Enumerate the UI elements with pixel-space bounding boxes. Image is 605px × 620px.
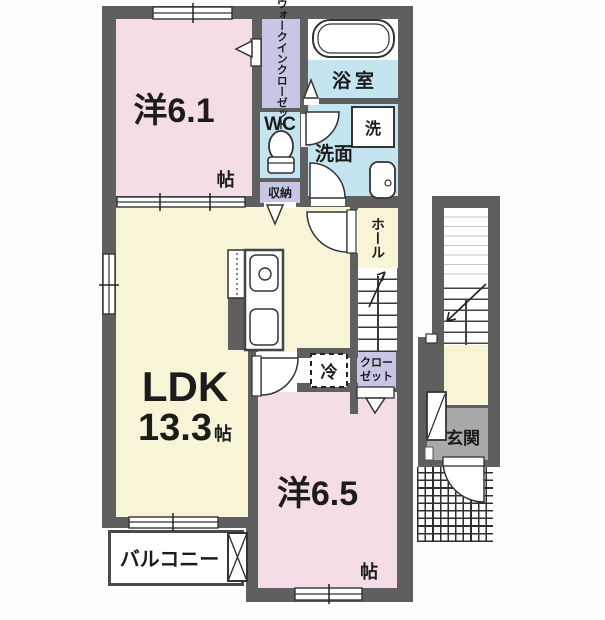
window-annex — [426, 334, 437, 343]
stairs-annex-arrow-icon — [447, 284, 486, 321]
bath-label: 浴室 — [308, 60, 398, 98]
bedroom1-unit: 帖 — [217, 166, 235, 192]
entrance-door-leaf — [443, 457, 484, 466]
bedroom2-door-arc — [261, 358, 298, 395]
washbasin-drain — [385, 180, 391, 186]
bedroom1-name: 洋6.1 — [133, 83, 214, 132]
bedroom2-label: 洋6.5帖 — [258, 392, 397, 588]
entrance-door-arc — [443, 461, 484, 502]
wic-label-line1: ウォークイン — [273, 0, 290, 64]
kitchen-faucet-icon — [259, 268, 271, 280]
fridge-label: 冷 — [311, 354, 347, 387]
hall-label: ホール — [358, 208, 398, 268]
closet-label: クロー ゼット — [357, 352, 396, 388]
washroom-door-arc-lower — [310, 163, 345, 198]
entrance-label: 玄関 — [437, 425, 489, 447]
bedroom2-unit: 帖 — [360, 558, 378, 584]
balcony-label: バルコニー — [112, 543, 227, 571]
ldk-unit: 帖 — [214, 420, 232, 446]
ldk-name: LDK — [142, 366, 228, 408]
closet-label-line1: クロー — [360, 356, 393, 370]
ldk-size-row: 13.3 帖 — [138, 408, 232, 450]
floor-plan: 洋6.1帖 ウォークインクローゼット 浴室 WC 洗 洗面 収納 ホール LDK… — [0, 0, 605, 620]
washbasin-icon — [370, 162, 395, 198]
toilet-tank-icon — [268, 157, 294, 173]
wc-label: WC — [260, 112, 300, 138]
wic-label: ウォークインクローゼット — [262, 19, 300, 108]
bedroom1-label: 洋6.1帖 — [116, 19, 252, 196]
ldk-size: 13.3 — [138, 408, 212, 450]
storage-door-arrow-icon — [267, 205, 283, 224]
hall-door-leaf — [347, 210, 356, 253]
sliding-door-balcony — [129, 513, 218, 531]
washroom-label: 洗面 — [306, 141, 362, 163]
closet-label-line2: ゼット — [360, 370, 393, 384]
kitchen-side-panel — [228, 298, 246, 350]
stove-icon — [250, 309, 278, 345]
storage-label: 収納 — [260, 182, 300, 203]
ldk-label: LDK 13.3 帖 — [105, 358, 265, 458]
stairs-main-arrow-icon — [369, 272, 385, 307]
entrance-side-window — [425, 447, 433, 460]
hall-door-arc — [307, 212, 347, 252]
bedroom2-name: 洋6.5 — [277, 466, 358, 515]
bathtub-inner — [318, 24, 389, 53]
window-ldk-left — [99, 254, 119, 314]
